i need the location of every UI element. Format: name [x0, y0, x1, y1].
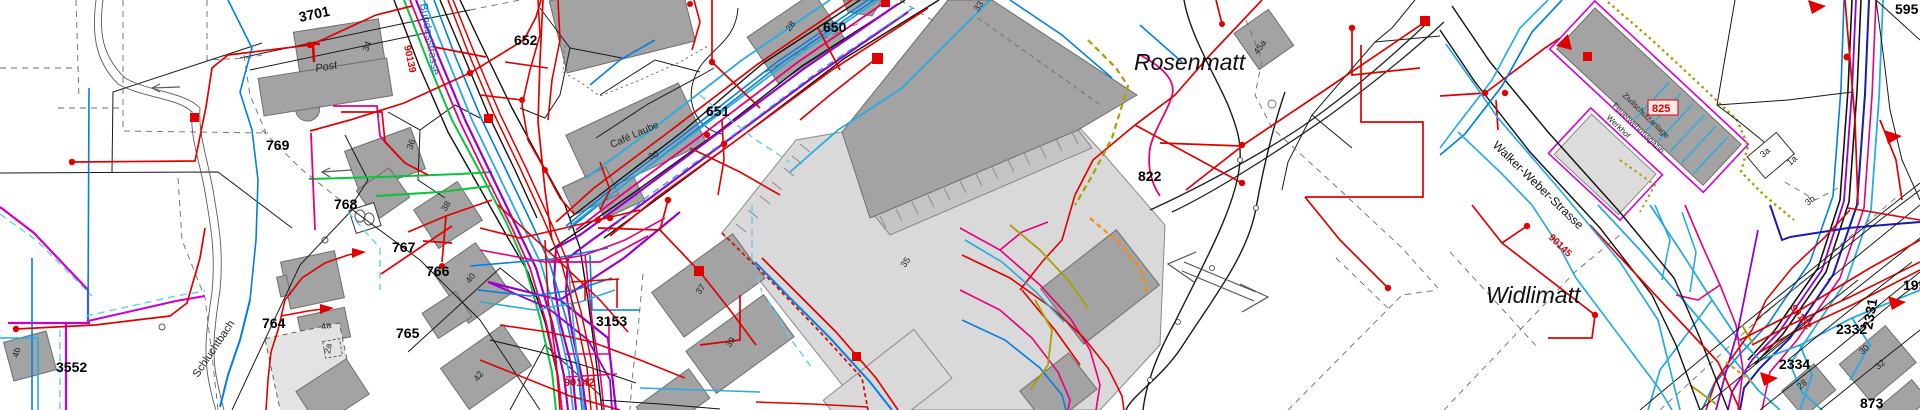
svg-text:766: 766 [426, 263, 450, 279]
svg-text:3552: 3552 [56, 359, 87, 375]
svg-text:769: 769 [266, 137, 290, 153]
svg-text:2334: 2334 [1779, 356, 1810, 372]
svg-text:650: 650 [823, 19, 847, 35]
svg-text:873: 873 [1860, 395, 1884, 410]
svg-text:Rosenmatt: Rosenmatt [1134, 49, 1247, 75]
svg-text:2a: 2a [322, 343, 334, 355]
svg-text:825: 825 [1652, 103, 1670, 115]
svg-text:768: 768 [334, 196, 358, 212]
svg-text:767: 767 [392, 239, 416, 255]
svg-text:765: 765 [396, 325, 420, 341]
svg-text:652: 652 [514, 32, 538, 48]
svg-text:90142: 90142 [564, 377, 595, 389]
svg-text:195: 195 [1903, 277, 1920, 293]
svg-text:595: 595 [1895, 1, 1919, 17]
svg-text:651: 651 [706, 103, 730, 119]
svg-text:3153: 3153 [596, 313, 627, 329]
svg-text:Widlimatt: Widlimatt [1486, 282, 1582, 308]
svg-text:764: 764 [262, 315, 286, 331]
svg-text:822: 822 [1138, 168, 1162, 184]
